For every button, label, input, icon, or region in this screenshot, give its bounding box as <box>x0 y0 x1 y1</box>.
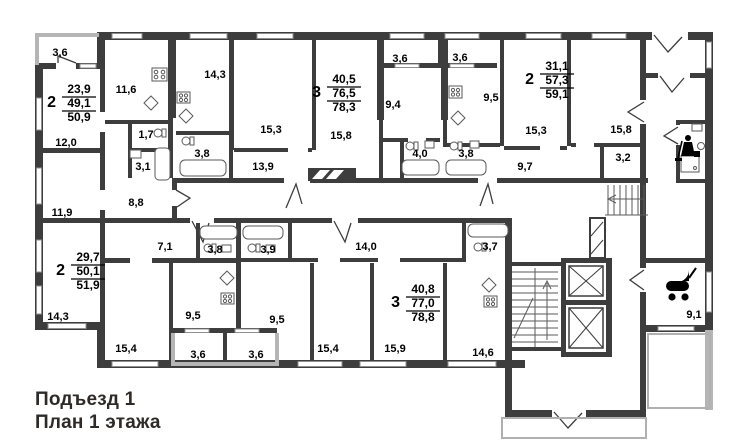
kitchen-sink-icon <box>179 109 193 123</box>
loggia-apt2-area: 3,6 <box>392 53 407 65</box>
bath-apt4-area: 3,8 <box>207 244 222 256</box>
sink-icon <box>692 124 702 131</box>
walls <box>35 32 713 418</box>
apt4-rooms: 2 <box>56 262 65 279</box>
kitchen-apt2-area: 14,3 <box>204 69 225 81</box>
loggia-apt3-area: 3,6 <box>452 52 467 64</box>
sink-icon <box>130 150 141 158</box>
bathtub-icon <box>155 148 170 180</box>
bathtub-icon <box>200 226 237 239</box>
bathtub-icon <box>468 224 508 237</box>
apt3-living: 31,1 <box>545 59 569 73</box>
toilet-icon <box>154 129 166 137</box>
duct-shaft <box>590 218 605 258</box>
stove-icon <box>152 68 167 81</box>
room3-apt2-area: 9,4 <box>385 99 401 111</box>
apt2-area: 76,5 <box>332 86 356 100</box>
stove-icon <box>221 293 234 304</box>
loggia-apt4-area: 3,6 <box>190 349 205 361</box>
toilet-icon <box>248 244 260 252</box>
apartment-label-2: 3 40,5 76,5 78,3 <box>312 72 361 114</box>
bath-apt2-area: 4,0 <box>412 148 427 160</box>
room2-apt5-area: 15,9 <box>384 343 405 355</box>
bath-apt5-area: 3,9 <box>260 244 275 256</box>
fixtures <box>130 68 705 307</box>
hall-cabinet <box>308 168 356 181</box>
kitchen-apt1-area: 11,6 <box>116 84 137 96</box>
room3-apt5-area: 9,5 <box>269 314 284 326</box>
kitchen-sink-icon <box>144 96 158 110</box>
bath2-apt5-area: 3,7 <box>482 241 497 253</box>
hall-apt2-area: 13,9 <box>252 161 273 173</box>
apt5-total: 78,8 <box>411 310 435 324</box>
kitchen-sink-icon <box>220 271 234 285</box>
apt5-rooms: 3 <box>391 294 400 311</box>
balcony-apt1-area: 3,6 <box>52 47 67 59</box>
room2-apt2-area: 15,8 <box>330 130 351 142</box>
stairs-main <box>512 268 558 347</box>
apt2-living: 40,5 <box>332 72 356 86</box>
room1-apt4-area: 14,3 <box>47 311 68 323</box>
bathtub-icon <box>402 160 439 175</box>
room2-apt1-area: 11,9 <box>52 207 73 219</box>
toilet-icon <box>698 143 705 150</box>
apt3-rooms: 2 <box>525 71 534 88</box>
apartment-label-5: 3 40,8 77,0 78,8 <box>391 282 440 324</box>
stove-icon <box>177 92 190 103</box>
apt4-total: 51,9 <box>76 278 100 292</box>
plan-caption: Подъезд 1 План 1 этажа <box>35 388 161 434</box>
room1-apt5-area: 15,4 <box>317 343 339 355</box>
floor-plan-page: 2 23,9 49,1 50,9 3 40,5 76,5 78,3 2 31,1… <box>0 0 750 447</box>
apartment-label-3: 2 31,1 57,3 59,1 <box>525 59 574 101</box>
room1-apt2-area: 15,3 <box>260 124 281 136</box>
apt3-total: 59,1 <box>545 87 569 101</box>
room1-apt3-area: 15,3 <box>525 125 546 137</box>
apt2-rooms: 3 <box>312 84 321 101</box>
kitchen-apt3-area: 9,5 <box>483 92 498 104</box>
hall-apt5-area: 14,0 <box>355 241 376 253</box>
hall-apt1-area: 8,8 <box>128 197 143 209</box>
floor-title: План 1 этажа <box>35 411 161 434</box>
apartment-label-1: 2 23,9 49,1 50,9 <box>47 82 96 124</box>
apt1-rooms: 2 <box>47 94 56 111</box>
bathtub-icon <box>180 160 226 176</box>
entrance-title: Подъезд 1 <box>35 388 161 411</box>
room1-apt1-area: 12,0 <box>55 137 76 149</box>
apt4-living: 29,7 <box>76 250 100 264</box>
toilet-icon <box>182 137 194 145</box>
apt3-area: 57,3 <box>545 73 569 87</box>
apt2-total: 78,3 <box>332 100 356 114</box>
apt5-area: 77,0 <box>411 296 435 310</box>
room2-apt3-area: 15,8 <box>610 124 631 136</box>
room2-apt4-area: 15,4 <box>115 343 137 355</box>
shower-pan-icon <box>681 156 699 172</box>
apt1-living: 23,9 <box>67 82 91 96</box>
elevator-shafts <box>308 168 612 357</box>
apartment-label-4: 2 29,7 50,1 51,9 <box>56 250 105 292</box>
apt1-area: 49,1 <box>67 96 91 110</box>
bathtub-icon <box>243 226 283 239</box>
stroller-room-icon <box>666 268 696 301</box>
wc-apt2-area: 3,8 <box>194 148 209 160</box>
apt4-area: 50,1 <box>76 264 100 278</box>
bath-apt1-area: 3,1 <box>135 161 150 173</box>
hall-apt3-area: 9,7 <box>517 161 532 173</box>
floor-plan-drawing: 2 23,9 49,1 50,9 3 40,5 76,5 78,3 2 31,1… <box>0 0 750 447</box>
sink-icon <box>470 141 479 148</box>
kitchen-sink-icon <box>451 111 465 125</box>
bathtub-icon <box>446 160 486 175</box>
apt1-total: 50,9 <box>67 110 91 124</box>
stove-icon <box>449 86 462 98</box>
apt5-living: 40,8 <box>411 282 435 296</box>
sink-icon <box>222 245 231 252</box>
wc-hall-apt1-area: 1,7 <box>138 129 153 141</box>
loggia-apt5-area: 3,6 <box>248 349 263 361</box>
stroller-room-area: 9,1 <box>686 309 701 321</box>
kitchen-apt5-area: 14,6 <box>472 347 493 359</box>
bath-apt3-area: 3,8 <box>458 148 473 160</box>
kitchen-apt4-area: 9,5 <box>185 310 200 322</box>
kitchen-sink-icon <box>482 278 496 292</box>
stove-icon <box>484 296 497 307</box>
hall-apt4-area: 7,1 <box>157 241 172 253</box>
sink-icon <box>425 141 434 148</box>
wardrobe-apt3-area: 3,2 <box>615 152 630 164</box>
